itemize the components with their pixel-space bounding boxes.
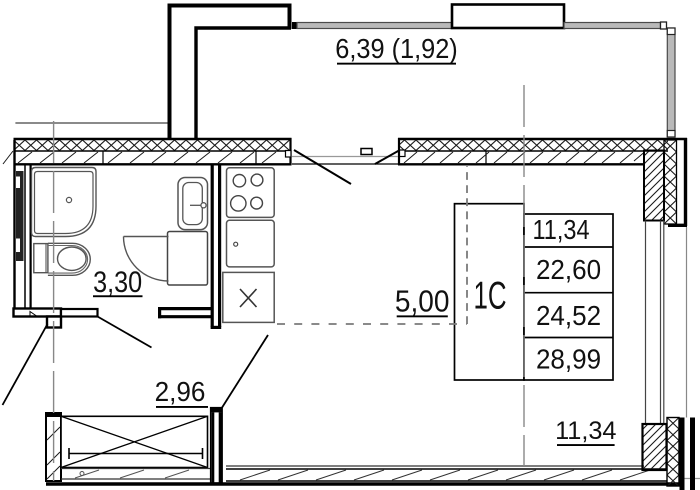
svg-text:1C: 1C [473,273,506,316]
svg-text:11,34: 11,34 [555,417,616,445]
svg-text:28,99: 28,99 [536,344,601,375]
svg-text:6,39 (1,92): 6,39 (1,92) [335,33,457,64]
svg-text:5,00: 5,00 [395,284,450,318]
svg-text:11,34: 11,34 [532,215,589,245]
svg-text:24,52: 24,52 [536,300,601,331]
svg-text:3,30: 3,30 [93,265,142,299]
svg-text:22,60: 22,60 [536,254,601,285]
svg-text:2,96: 2,96 [155,376,206,407]
